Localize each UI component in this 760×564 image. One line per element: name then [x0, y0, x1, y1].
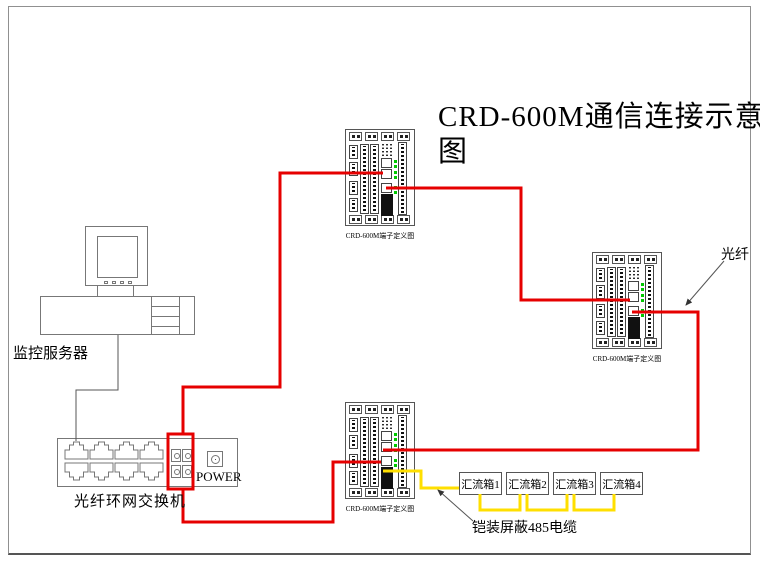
monitor-button — [112, 281, 116, 284]
processor-block — [381, 194, 393, 216]
status-led — [394, 459, 397, 462]
terminal-strip — [349, 162, 358, 176]
connector-pin-grid — [381, 416, 393, 430]
rj45-port — [115, 463, 138, 480]
power-label: POWER — [196, 469, 242, 485]
drive-bay-line — [151, 326, 179, 327]
bottom-connector — [349, 488, 362, 497]
panel-caption: CRD-600M端子定义图 — [346, 504, 414, 514]
status-led — [394, 171, 397, 174]
terminal-strip — [607, 267, 616, 337]
status-led — [394, 176, 397, 179]
terminal-strip — [349, 181, 358, 195]
fiber-port — [171, 449, 181, 462]
top-connector — [596, 255, 609, 264]
processor-block — [628, 317, 640, 339]
terminal-strip — [596, 304, 605, 318]
fiber-port — [171, 465, 181, 478]
monitor-stand — [133, 286, 134, 296]
rj45-port — [90, 442, 113, 459]
processor-block — [381, 467, 393, 489]
connector-pin-grid — [628, 266, 640, 280]
fiber-port — [381, 169, 392, 179]
terminal-strip — [360, 144, 369, 214]
combiner-box: 汇流箱3 — [553, 472, 596, 495]
terminal-strip — [349, 435, 358, 449]
terminal-strip — [349, 454, 358, 468]
terminal-strip — [360, 417, 369, 487]
top-connector — [612, 255, 625, 264]
top-connector — [349, 132, 362, 141]
rj45-port — [90, 463, 113, 480]
server-label: 监控服务器 — [13, 342, 88, 363]
monitor-button — [120, 281, 124, 284]
status-led — [394, 449, 397, 452]
terminal-strip — [596, 321, 605, 335]
terminal-strip — [645, 265, 654, 338]
switch-label: 光纤环网交换机 — [74, 490, 186, 511]
terminal-strip — [398, 415, 407, 488]
fiber-port — [182, 449, 192, 462]
drive-bay-line — [151, 316, 179, 317]
status-led — [394, 464, 397, 467]
drive-bay-line — [151, 306, 179, 307]
fiber-port — [381, 183, 392, 193]
status-led — [394, 433, 397, 436]
top-connector — [381, 405, 394, 414]
monitor-stand — [97, 286, 98, 296]
rj45-port-group — [58, 439, 188, 485]
top-connector — [381, 132, 394, 141]
status-led — [641, 294, 644, 297]
bottom-connector — [612, 338, 625, 347]
status-led — [641, 283, 644, 286]
rj45-port — [140, 463, 163, 480]
bottom-connector — [644, 338, 657, 347]
panel-caption: CRD-600M端子定义图 — [346, 231, 414, 241]
top-connector — [644, 255, 657, 264]
diagram-canvas: 监控服务器 POWER 光纤环网交换机 CRD-600M通信连接示意 图 光纤 … — [0, 0, 760, 564]
status-led — [394, 191, 397, 194]
fiber-port — [381, 442, 392, 452]
monitor-button — [104, 281, 108, 284]
top-connector — [628, 255, 641, 264]
terminal-strip — [349, 471, 358, 485]
status-led — [394, 186, 397, 189]
title-line2: 图 — [438, 135, 760, 170]
monitor-screen — [97, 236, 138, 278]
crd600m-terminal-panel: CRD-600M端子定义图 — [345, 129, 415, 226]
bottom-connector — [596, 338, 609, 347]
fiber-port — [182, 465, 192, 478]
fiber-port — [628, 281, 639, 291]
rj45-port — [65, 463, 88, 480]
status-led — [641, 299, 644, 302]
top-connector — [365, 405, 378, 414]
fiber-port — [381, 158, 392, 168]
status-led — [394, 165, 397, 168]
crd600m-terminal-panel: CRD-600M端子定义图 — [345, 402, 415, 499]
fiber-port — [628, 306, 639, 316]
status-led — [394, 438, 397, 441]
title-line1: CRD-600M通信连接示意 — [438, 100, 760, 135]
fiber-port — [628, 292, 639, 302]
combiner-box: 汇流箱4 — [600, 472, 643, 495]
terminal-strip — [398, 142, 407, 215]
rj45-port — [140, 442, 163, 459]
terminal-strip — [596, 268, 605, 282]
fiber-switch: POWER — [57, 438, 238, 487]
bottom-connector — [349, 215, 362, 224]
bottom-connector — [381, 488, 394, 497]
bottom-connector — [381, 215, 394, 224]
power-connector — [207, 451, 223, 467]
combiner-box: 汇流箱1 — [459, 472, 502, 495]
terminal-strip — [349, 145, 358, 159]
bottom-connector — [397, 215, 410, 224]
status-led — [394, 160, 397, 163]
bottom-connector — [365, 215, 378, 224]
top-connector — [349, 405, 362, 414]
rj45-port — [115, 442, 138, 459]
bottom-connector — [397, 488, 410, 497]
terminal-strip — [370, 417, 379, 487]
status-led — [641, 288, 644, 291]
status-led — [394, 444, 397, 447]
status-led — [641, 314, 644, 317]
fiber-port — [381, 431, 392, 441]
page-title: CRD-600M通信连接示意 图 — [438, 100, 760, 170]
monitor-button — [128, 281, 132, 284]
server-case — [40, 296, 195, 335]
crd600m-terminal-panel: CRD-600M端子定义图 — [592, 252, 662, 349]
terminal-strip — [617, 267, 626, 337]
top-connector — [397, 132, 410, 141]
fiber-annotation: 光纤 — [721, 244, 749, 264]
panel-caption: CRD-600M端子定义图 — [593, 354, 661, 364]
bottom-connector — [628, 338, 641, 347]
connector-pin-grid — [381, 143, 393, 157]
top-connector — [365, 132, 378, 141]
rj45-port — [65, 442, 88, 459]
fiber-port — [381, 456, 392, 466]
terminal-strip — [349, 198, 358, 212]
status-led — [641, 309, 644, 312]
case-divider — [179, 297, 180, 334]
cable-annotation: 铠装屏蔽485电缆 — [472, 517, 577, 537]
combiner-box: 汇流箱2 — [506, 472, 549, 495]
top-connector — [397, 405, 410, 414]
terminal-strip — [370, 144, 379, 214]
terminal-strip — [596, 285, 605, 299]
server-monitor — [85, 226, 148, 286]
terminal-strip — [349, 418, 358, 432]
bottom-connector — [365, 488, 378, 497]
